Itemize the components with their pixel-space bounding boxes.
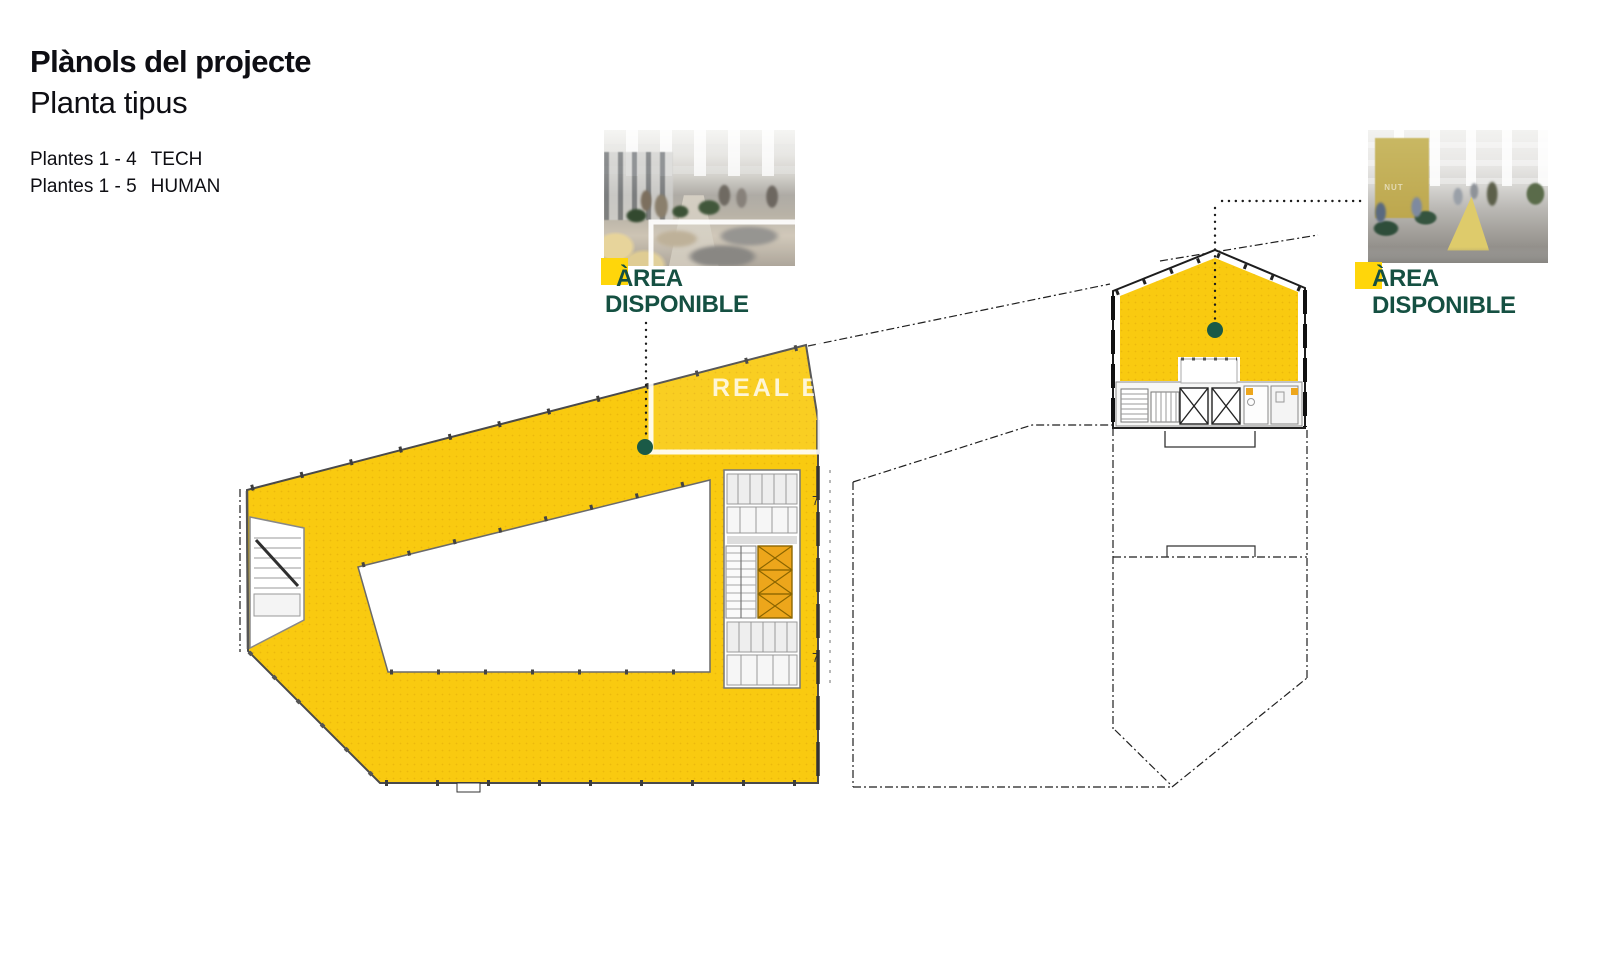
section-mark-bottom: 7 [812, 650, 819, 665]
right-tower-floor-plan [1113, 250, 1305, 447]
core-lobby [1181, 359, 1237, 383]
area-label-line2: DISPONIBLE [1372, 293, 1516, 319]
area-dot-left [637, 439, 653, 455]
core-elevators [758, 546, 792, 618]
left-tower-floor-plan: 7 7 REAL ESTAT [247, 222, 895, 792]
core-corridor [727, 536, 797, 544]
section-mark-top: 7 [812, 493, 819, 508]
floor-plans-canvas: 7 7 REAL ESTAT [0, 0, 1600, 968]
area-label-line1: ÀREA [1372, 266, 1439, 292]
site-bracket-mark [1167, 546, 1255, 557]
entrance-bracket-mark [1165, 431, 1255, 447]
area-disponible-label-left: ÀREA DISPONIBLE [601, 258, 771, 328]
area-disponible-label-right: ÀREA DISPONIBLE [1355, 262, 1525, 332]
core-wc-rooms [1244, 386, 1298, 424]
core-stairs [726, 546, 756, 618]
area-label-line1: ÀREA [616, 266, 683, 292]
left-plan-entrance-tab [457, 783, 480, 792]
left-plan-core [724, 470, 800, 688]
area-dot-right [1207, 322, 1223, 338]
core-wc-stalls-top [727, 474, 797, 533]
callout-highlight-rect [651, 222, 820, 452]
brochure-page: Plànols del projecte Planta tipus Plante… [0, 0, 1600, 968]
area-label-line2: DISPONIBLE [605, 292, 749, 318]
